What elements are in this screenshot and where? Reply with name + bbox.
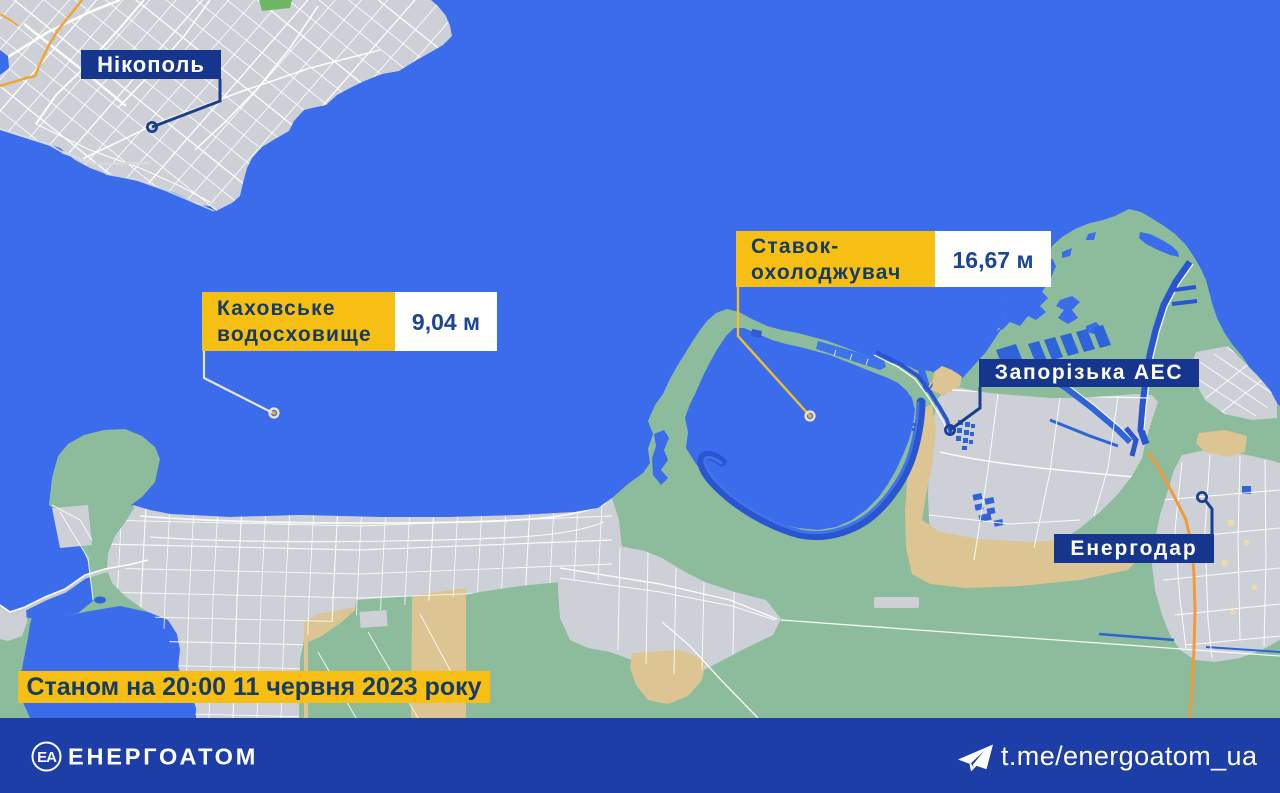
- svg-text:ЕНЕРГОАТОМ: ЕНЕРГОАТОМ: [68, 744, 258, 770]
- svg-text:ЕА: ЕА: [37, 749, 57, 766]
- svg-text:t.me/energoatom_ua: t.me/energoatom_ua: [1001, 741, 1258, 771]
